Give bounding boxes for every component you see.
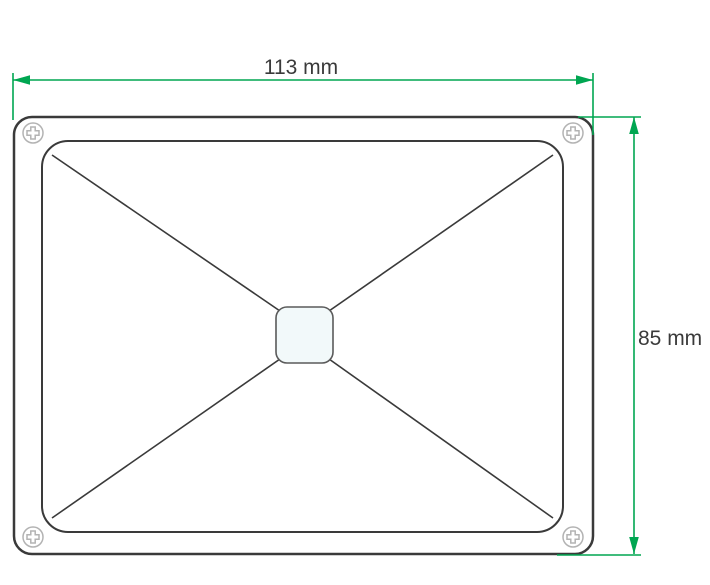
- arrowhead-down-icon: [629, 537, 639, 554]
- panel-body: [14, 117, 593, 554]
- diagonal-top-right: [329, 155, 553, 311]
- diagonal-top-left: [52, 155, 280, 311]
- arrowhead-left-icon: [13, 75, 30, 85]
- screw-icon-bottom-right: [563, 527, 583, 547]
- technical-drawing-canvas: 113 mm 85 mm: [0, 0, 710, 585]
- arrowhead-right-icon: [576, 75, 593, 85]
- screw-icon-top-left: [23, 123, 43, 143]
- dimension-width: [13, 73, 593, 135]
- screw-icon-top-right: [563, 123, 583, 143]
- dimension-drawing: 113 mm 85 mm: [0, 0, 710, 585]
- diagonal-bottom-right: [329, 359, 553, 518]
- diagonal-bottom-left: [52, 359, 280, 518]
- arrowhead-up-icon: [629, 117, 639, 134]
- height-dimension-label: 85 mm: [638, 327, 702, 350]
- screw-icon-bottom-left: [23, 527, 43, 547]
- dimension-height: [557, 117, 641, 555]
- center-square: [276, 307, 333, 363]
- width-dimension-label: 113 mm: [264, 56, 338, 79]
